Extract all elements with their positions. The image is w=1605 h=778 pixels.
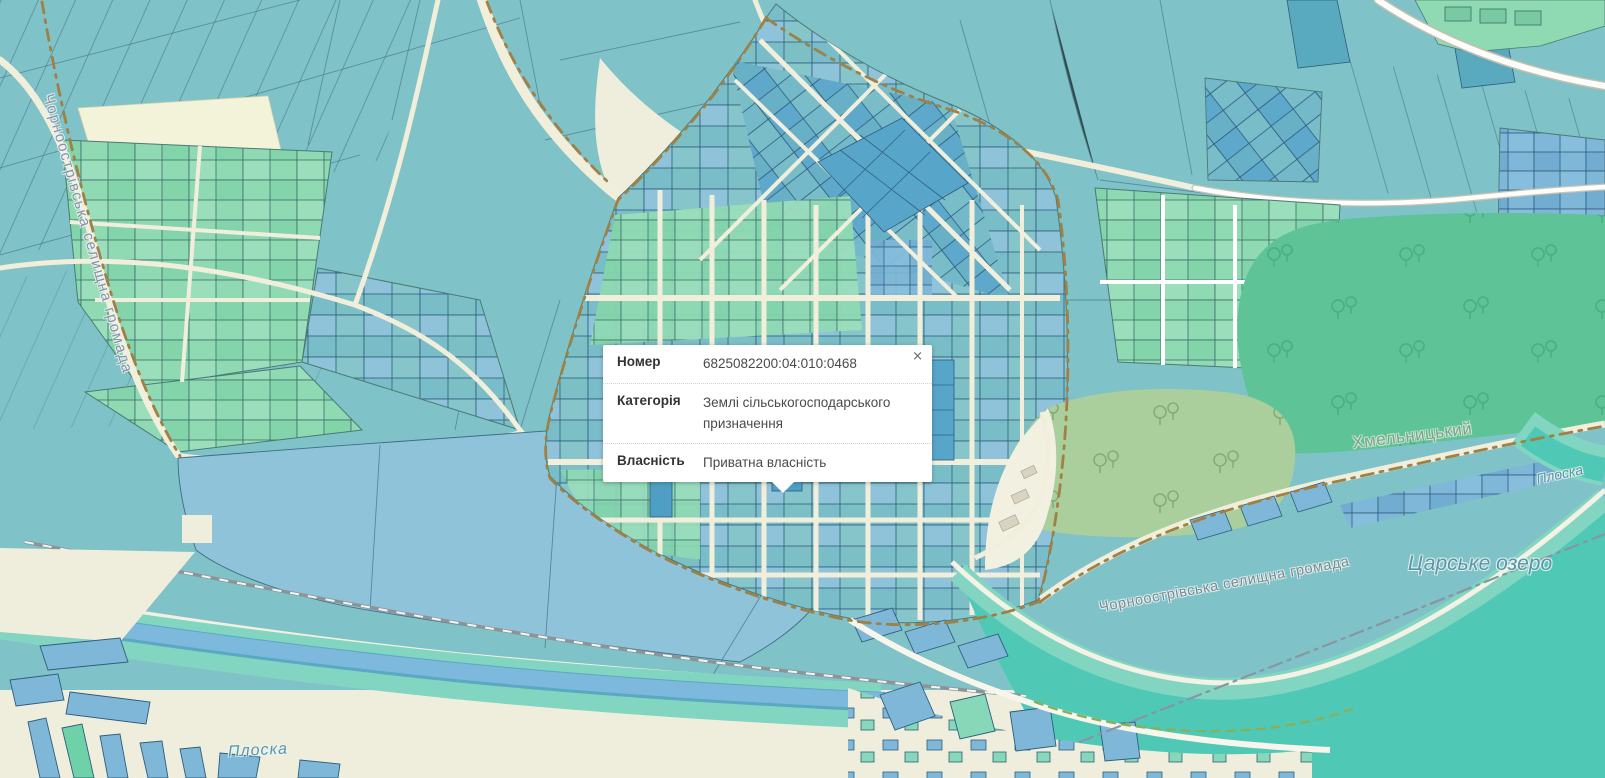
popup-close-button[interactable]: × [912,350,923,363]
popup-label-number: Номер [617,354,703,375]
popup-label-category: Категорія [617,393,703,435]
map-viewport[interactable]: Чорноострівська селищна громада Чорноост… [0,0,1605,778]
popup-anchor-pointer [771,481,795,493]
popup-value-ownership: Приватна власність [703,453,918,474]
popup-row-number: Номер 6825082200:04:010:0468 [603,345,932,383]
parcel-info-popup: × Номер 6825082200:04:010:0468 Категорія… [603,345,932,482]
popup-row-category: Категорія Землі сільськогосподарського п… [603,383,932,443]
popup-row-ownership: Власність Приватна власність [603,443,932,482]
popup-label-ownership: Власність [617,453,703,474]
popup-value-category: Землі сільськогосподарського призначення [703,393,918,435]
popup-value-number: 6825082200:04:010:0468 [703,354,918,375]
